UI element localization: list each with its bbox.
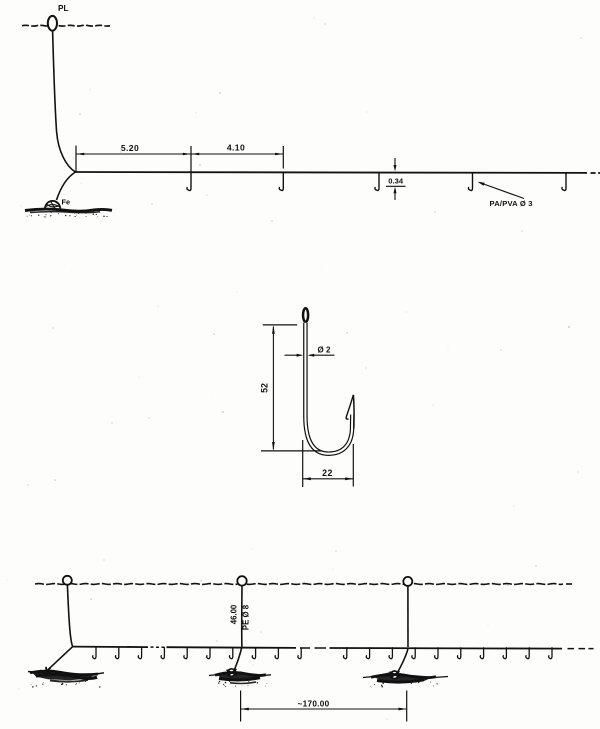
svg-text:22: 22 xyxy=(322,468,333,478)
svg-text:~170.00: ~170.00 xyxy=(298,699,330,708)
svg-text:52: 52 xyxy=(260,383,270,393)
svg-text:PE Ø 8: PE Ø 8 xyxy=(242,604,251,630)
svg-text:0.34: 0.34 xyxy=(388,176,404,185)
svg-text:PA/PVA Ø 3: PA/PVA Ø 3 xyxy=(490,199,533,208)
svg-text:PL: PL xyxy=(58,4,68,13)
svg-text:Fe: Fe xyxy=(62,198,71,207)
svg-text:46.00: 46.00 xyxy=(230,604,239,624)
svg-text:4.10: 4.10 xyxy=(227,143,245,153)
svg-text:5.20: 5.20 xyxy=(121,143,139,153)
svg-text:Ø 2: Ø 2 xyxy=(318,345,331,354)
